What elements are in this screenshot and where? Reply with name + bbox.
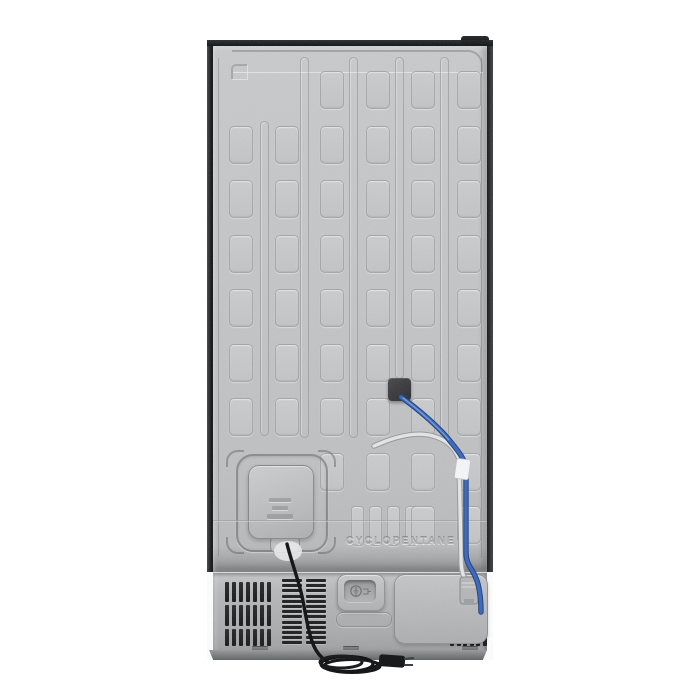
stamped-rect <box>457 126 481 164</box>
stamped-rect <box>411 453 435 491</box>
vent-louver-center <box>306 641 326 644</box>
stamped-rect <box>457 453 481 491</box>
stamped-rect <box>275 398 299 436</box>
emblem-lower-tab <box>336 612 392 627</box>
vent-louver-center <box>306 610 326 613</box>
vent-slat-left <box>232 605 236 626</box>
stamped-rect <box>275 235 299 273</box>
refrigerant-channel <box>440 57 449 438</box>
stamped-rect <box>320 180 344 218</box>
stamped-rect <box>275 289 299 327</box>
vent-slat-left <box>253 582 257 602</box>
vent-slat-left <box>232 582 236 602</box>
stamped-rect <box>366 180 390 218</box>
stamped-rect <box>320 344 344 382</box>
vent-slat-left <box>239 582 243 602</box>
vent-slat-left <box>267 582 271 602</box>
vent-louver-center <box>282 605 302 608</box>
vent-slat-left <box>260 582 264 602</box>
vent-louver-center <box>282 589 302 592</box>
stamped-rect <box>275 344 299 382</box>
vent-louver-center <box>306 626 326 629</box>
stamped-rect <box>229 398 253 436</box>
product-photo-canvas: CYCLOPENTANE <box>0 0 700 700</box>
water-valve-junction-box <box>388 378 411 401</box>
embossed-edge-line-left <box>218 58 219 556</box>
vent-louver-center <box>282 636 302 639</box>
vent-slat-left <box>253 629 257 646</box>
vent-louver-center <box>306 579 326 582</box>
stamped-rect <box>457 289 481 327</box>
stamped-rect <box>366 398 390 436</box>
vent-slat-left <box>246 605 250 626</box>
ground-plug-icon <box>344 580 376 603</box>
stamped-rect <box>411 180 435 218</box>
stamped-rect <box>411 344 435 382</box>
vent-slat-left <box>246 582 250 602</box>
stamped-rect <box>275 180 299 218</box>
stamped-rect <box>366 289 390 327</box>
stamp-mark <box>267 514 293 519</box>
electrical-emblem-recess <box>344 580 376 603</box>
stamped-rect <box>229 289 253 327</box>
panel-bottom-shadow <box>213 546 487 572</box>
refrigerant-channel <box>300 57 309 438</box>
fridge-side-frame-right <box>487 40 493 572</box>
access-panel-cover <box>248 465 314 539</box>
stamp-mark <box>269 498 291 502</box>
vent-louver-center <box>282 626 302 629</box>
stamped-rect <box>366 126 390 164</box>
stamped-rect <box>411 126 435 164</box>
vent-louver-center <box>282 600 302 603</box>
vent-louver-center <box>282 610 302 613</box>
vent-slat-left <box>225 629 229 646</box>
stamped-rect <box>320 289 344 327</box>
vent-louver-center <box>306 589 326 592</box>
vent-louver-center <box>306 636 326 639</box>
stamped-rect <box>366 71 390 109</box>
stamped-rect <box>366 344 390 382</box>
stamped-rect <box>229 235 253 273</box>
vent-slat-left <box>232 629 236 646</box>
stamped-rect <box>229 180 253 218</box>
vent-slat-left <box>239 629 243 646</box>
stamped-rect <box>457 180 481 218</box>
vent-louver-center <box>306 600 326 603</box>
refrigerant-channel <box>349 57 358 438</box>
vent-slat-left <box>260 605 264 626</box>
refrigerant-channel <box>260 121 269 436</box>
refrigerant-channel <box>395 57 404 379</box>
vent-louver-center <box>282 621 302 624</box>
stamped-rect <box>366 235 390 273</box>
stamped-rect <box>411 398 435 436</box>
stamped-rect <box>411 71 435 109</box>
electrical-emblem <box>337 574 385 611</box>
stamped-rect <box>457 71 481 109</box>
embossed-corner-bracket <box>231 64 247 79</box>
stamped-rect <box>411 289 435 327</box>
vent-louver-center <box>282 615 302 618</box>
vent-slat-left <box>253 605 257 626</box>
vent-louver-center <box>282 584 302 587</box>
stamped-rect <box>320 235 344 273</box>
vent-slat-left <box>225 582 229 602</box>
vent-louver-center <box>282 595 302 598</box>
vent-louver-center <box>282 631 302 634</box>
stamped-rect <box>320 71 344 109</box>
compartment-right-panel <box>394 574 488 644</box>
vent-slat-left <box>260 629 264 646</box>
vent-louver-center <box>282 579 302 582</box>
embossed-edge-line-right <box>481 58 482 558</box>
panel-seam-line <box>213 520 487 522</box>
vent-slat-left <box>246 629 250 646</box>
stamped-rect <box>366 453 390 491</box>
stamped-rect <box>411 235 435 273</box>
vent-slat-left <box>239 605 243 626</box>
stamped-rect <box>457 235 481 273</box>
vent-louver-center <box>306 631 326 634</box>
vent-louver-center <box>306 584 326 587</box>
stamped-rect <box>320 398 344 436</box>
stamp-mark <box>272 506 288 510</box>
vent-slat-left <box>267 629 271 646</box>
hinge-cover-tab <box>461 36 489 46</box>
vent-louver-center <box>306 621 326 624</box>
stamped-rect <box>275 126 299 164</box>
vent-slat-left <box>267 605 271 626</box>
vent-louver-center <box>282 641 302 644</box>
vent-louver-center <box>306 605 326 608</box>
stamped-rect <box>457 344 481 382</box>
stamped-rect <box>457 398 481 436</box>
base-strip <box>209 650 487 660</box>
vent-louver-center <box>306 595 326 598</box>
vent-slat-left <box>225 605 229 626</box>
stamped-rect <box>229 344 253 382</box>
stamped-rect <box>229 126 253 164</box>
vent-louver-center <box>306 615 326 618</box>
stamped-rect <box>320 126 344 164</box>
